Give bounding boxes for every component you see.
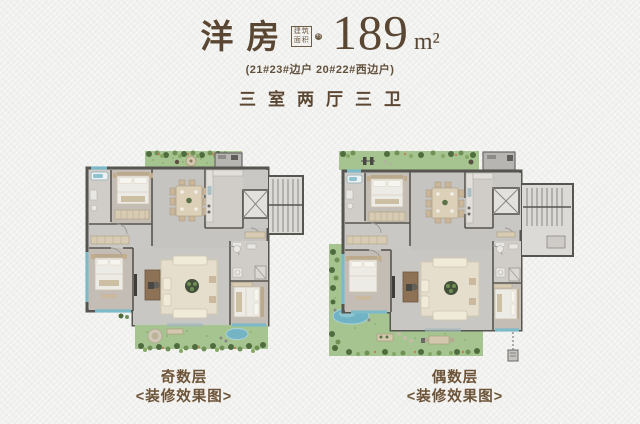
unit-subtitle: (21#23#边户 20#22#西边户) <box>0 61 640 77</box>
plan-caption-even: 偶数层 <装修效果图> <box>407 369 503 407</box>
building-area-seal: 建筑 面积 约 <box>291 26 322 47</box>
area-unit: m² <box>414 29 440 56</box>
plan-caption-label-even: <装修效果图> <box>407 388 503 407</box>
header: 洋房 建筑 面积 约 189 m² (21#23#边户 20#22#西边户) 三… <box>0 0 640 110</box>
seal-box: 建筑 面积 <box>291 26 312 47</box>
floor-plan-odd-drawing <box>55 148 313 363</box>
floor-plan-even-drawing <box>325 148 585 363</box>
seal-line1: 建筑 <box>292 27 311 36</box>
page-title: 洋房 <box>200 10 292 58</box>
seal-line2: 面积 <box>292 36 311 45</box>
floor-plan-odd: 奇数层 <装修效果图> <box>55 148 313 407</box>
floor-plan-even: 偶数层 <装修效果图> <box>325 148 585 407</box>
poster-page: 洋房 建筑 面积 约 189 m² (21#23#边户 20#22#西边户) 三… <box>0 0 640 424</box>
area-group: 189 m² <box>332 12 439 56</box>
plan-name-even: 偶数层 <box>407 369 503 388</box>
floor-plans-row: 奇数层 <装修效果图> <box>0 148 640 407</box>
approx-badge: 约 <box>315 33 322 40</box>
plan-name-odd: 奇数层 <box>136 369 232 388</box>
title-row: 洋房 建筑 面积 约 189 m² <box>0 10 640 58</box>
room-spec: 三室两厅三卫 <box>0 85 640 110</box>
plan-caption-odd: 奇数层 <装修效果图> <box>136 369 232 407</box>
area-value: 189 <box>332 12 409 54</box>
plan-caption-label-odd: <装修效果图> <box>136 388 232 407</box>
